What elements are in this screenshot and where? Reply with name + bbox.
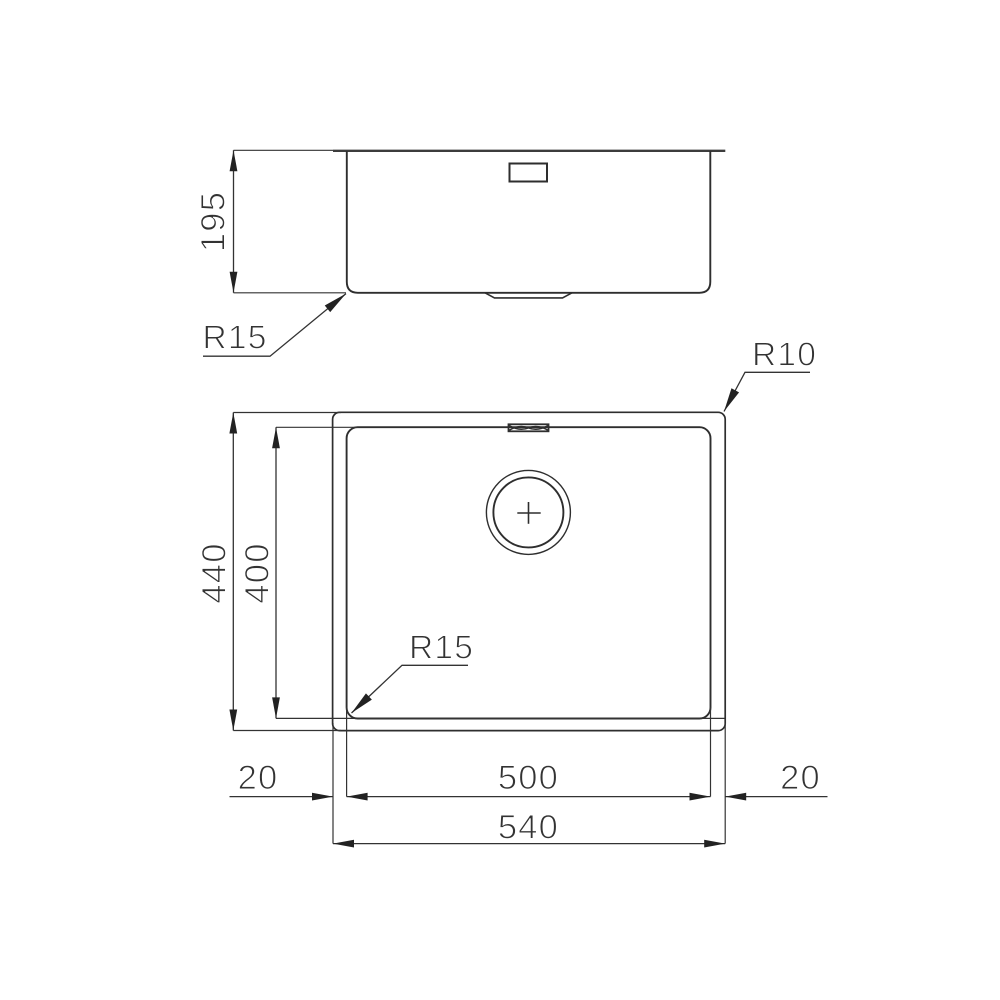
- svg-text:195: 195: [195, 191, 233, 252]
- svg-text:500: 500: [498, 759, 559, 797]
- svg-text:20: 20: [238, 759, 279, 797]
- svg-text:540: 540: [498, 809, 559, 847]
- svg-text:400: 400: [239, 542, 277, 603]
- svg-text:R15: R15: [409, 630, 474, 667]
- svg-text:R10: R10: [752, 337, 817, 374]
- svg-text:R15: R15: [203, 320, 268, 357]
- svg-text:440: 440: [196, 542, 234, 603]
- svg-text:20: 20: [780, 759, 821, 797]
